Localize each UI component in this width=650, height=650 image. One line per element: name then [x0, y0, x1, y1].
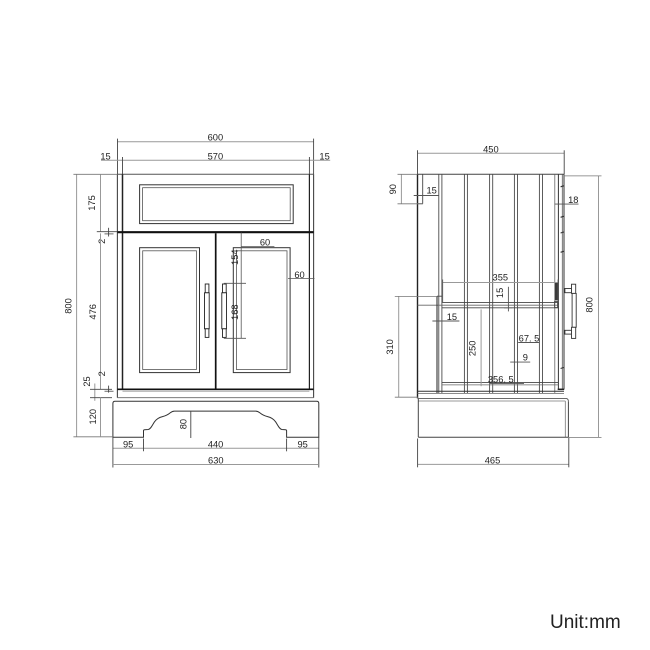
svg-text:95: 95 [123, 439, 133, 449]
svg-text:250: 250 [468, 341, 478, 357]
svg-text:356. 5: 356. 5 [488, 375, 514, 385]
svg-text:440: 440 [208, 439, 224, 449]
svg-text:800: 800 [585, 297, 595, 313]
svg-text:15: 15 [427, 186, 437, 196]
svg-text:15: 15 [319, 151, 329, 161]
svg-text:2: 2 [97, 371, 107, 376]
svg-text:60: 60 [294, 270, 304, 280]
svg-text:355: 355 [493, 273, 509, 283]
svg-text:67. 5: 67. 5 [519, 333, 540, 343]
svg-text:2: 2 [97, 239, 107, 244]
svg-text:15: 15 [447, 312, 457, 322]
svg-text:9: 9 [523, 353, 528, 363]
svg-text:95: 95 [298, 439, 308, 449]
svg-text:154: 154 [230, 249, 240, 265]
svg-text:310: 310 [385, 339, 395, 355]
svg-text:80: 80 [179, 419, 189, 429]
svg-text:570: 570 [208, 151, 224, 161]
svg-text:15: 15 [495, 288, 505, 298]
svg-text:120: 120 [88, 409, 98, 425]
svg-text:175: 175 [87, 195, 97, 211]
svg-text:600: 600 [208, 133, 224, 143]
svg-text:60: 60 [260, 238, 270, 248]
svg-text:168: 168 [230, 304, 240, 320]
svg-text:476: 476 [88, 304, 98, 320]
svg-text:465: 465 [485, 455, 501, 465]
svg-text:90: 90 [388, 184, 398, 194]
svg-text:Unit:mm: Unit:mm [550, 612, 621, 633]
svg-text:630: 630 [208, 456, 224, 466]
svg-text:450: 450 [483, 144, 499, 154]
svg-text:25: 25 [82, 376, 92, 386]
svg-text:800: 800 [63, 298, 73, 314]
svg-text:18: 18 [568, 195, 578, 205]
svg-text:15: 15 [100, 151, 110, 161]
